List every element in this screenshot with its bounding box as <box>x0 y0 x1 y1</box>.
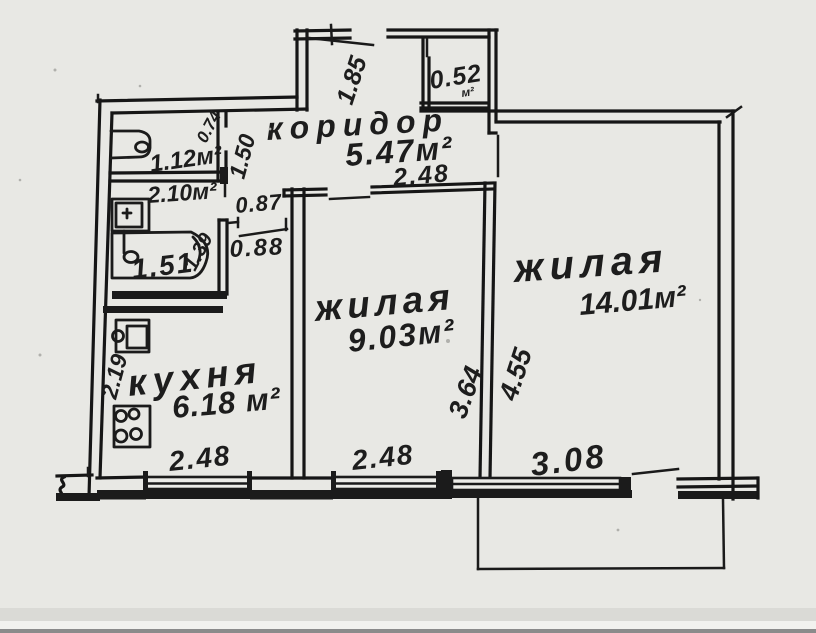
svg-text:2.48: 2.48 <box>349 439 415 476</box>
svg-text:2.10м²: 2.10м² <box>146 177 219 208</box>
svg-text:2.48: 2.48 <box>391 159 451 192</box>
svg-text:2.48: 2.48 <box>166 440 232 477</box>
svg-text:0.87: 0.87 <box>234 189 284 218</box>
svg-text:0.88: 0.88 <box>229 233 285 263</box>
